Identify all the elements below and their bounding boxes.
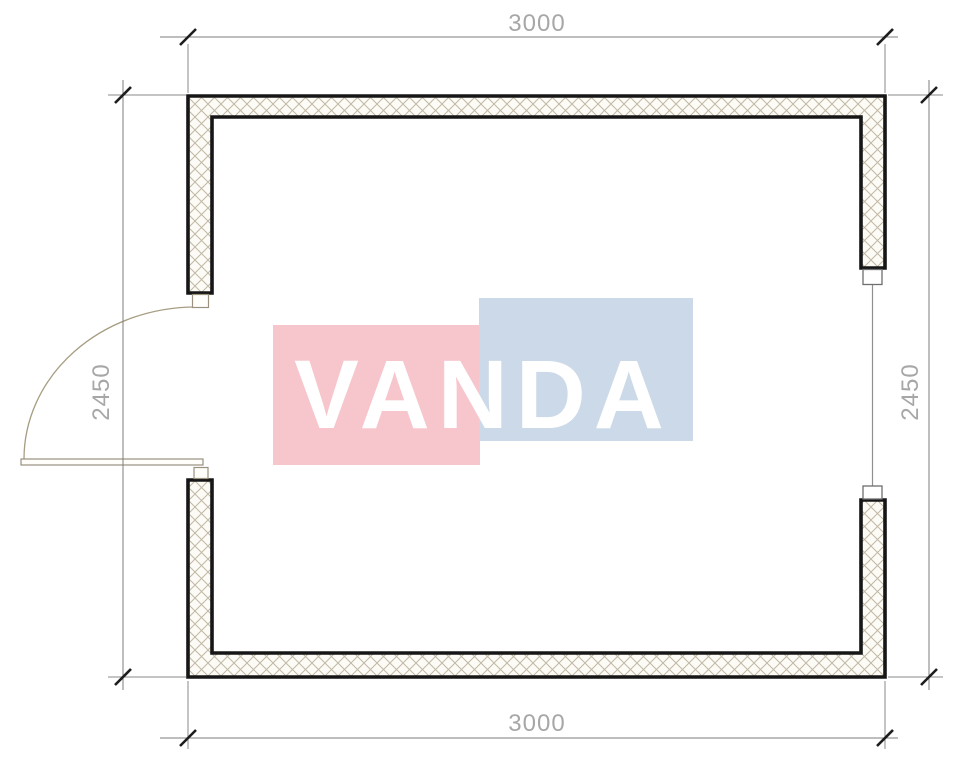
dimension-bottom-value: 3000 bbox=[508, 710, 565, 737]
dimension-left: 2450 bbox=[88, 80, 186, 690]
window-jamb-bottom bbox=[863, 486, 882, 499]
dimension-top: 3000 bbox=[160, 10, 898, 93]
door-jamb-top bbox=[193, 295, 209, 308]
window bbox=[863, 270, 882, 500]
window-jamb-top bbox=[863, 270, 882, 285]
dimension-right-value: 2450 bbox=[897, 363, 924, 420]
dimension-bottom: 3000 bbox=[160, 681, 898, 749]
dimension-left-value: 2450 bbox=[88, 363, 115, 420]
floor-plan-page: VANDA 3000 3000 bbox=[0, 0, 960, 768]
floor-plan-canvas: VANDA 3000 3000 bbox=[0, 0, 960, 768]
dimension-top-value: 3000 bbox=[508, 10, 565, 37]
dimension-right: 2450 bbox=[888, 80, 943, 690]
door-jamb-bottom bbox=[194, 468, 208, 479]
wall-lower-u-shape bbox=[188, 480, 885, 677]
wall-upper-u-shape bbox=[188, 96, 885, 293]
door-leaf bbox=[21, 459, 203, 465]
watermark-text: VANDA bbox=[294, 340, 672, 449]
watermark: VANDA bbox=[273, 298, 693, 465]
